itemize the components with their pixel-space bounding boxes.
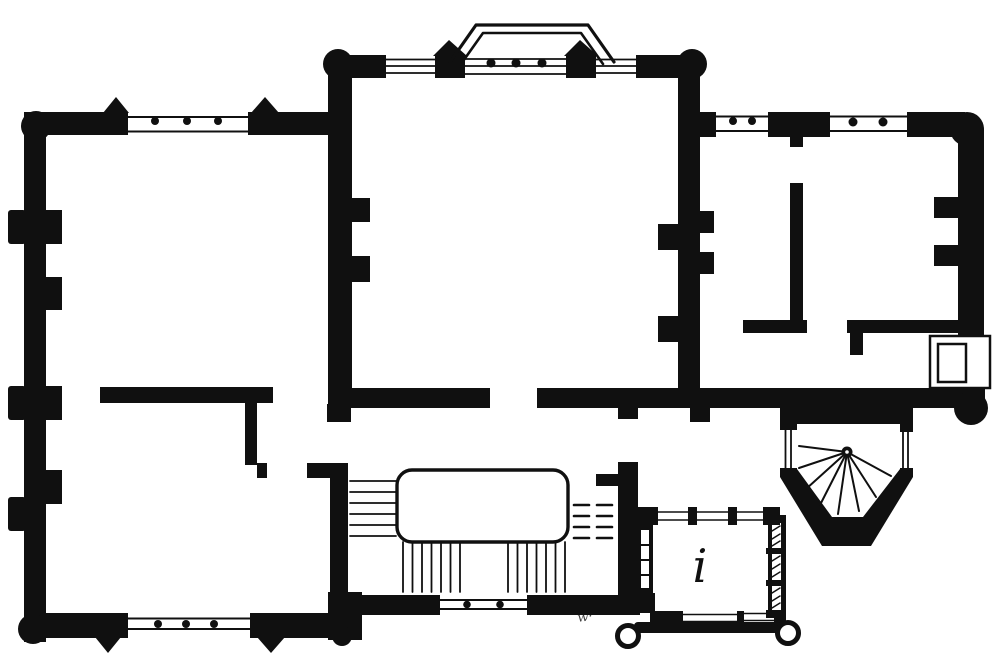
upper-flight-treads bbox=[350, 481, 396, 536]
plate-mark: w· bbox=[576, 609, 593, 626]
corner-fireplace-niche bbox=[930, 336, 990, 388]
left-wing-walls bbox=[8, 97, 362, 653]
dog-leg-stair bbox=[350, 470, 620, 592]
fireplace-pilaster bbox=[352, 198, 370, 222]
fireplace-pilaster bbox=[352, 256, 370, 282]
porch-base bbox=[634, 622, 782, 633]
stair-hall-south-window bbox=[440, 600, 527, 609]
fireplace-pilaster bbox=[934, 245, 960, 266]
great-hall-walls bbox=[323, 40, 985, 422]
stair-landing bbox=[397, 470, 568, 542]
west-buttress bbox=[8, 386, 26, 420]
fireplace-pilaster bbox=[934, 197, 960, 218]
spiral-stair-turret bbox=[780, 406, 913, 546]
fireplace-pilaster bbox=[700, 252, 714, 274]
floorplan-figure: i w· bbox=[0, 0, 1000, 657]
buttress-triangle bbox=[251, 97, 279, 113]
left-wing-south-window bbox=[128, 619, 250, 630]
porch-foot bbox=[618, 626, 639, 647]
fireplace-pilaster bbox=[658, 224, 678, 250]
west-buttress bbox=[8, 210, 26, 244]
porch-foot bbox=[778, 623, 799, 644]
west-buttress bbox=[8, 497, 26, 531]
fireplace-pilaster bbox=[46, 210, 62, 244]
fireplace-pilaster bbox=[46, 386, 62, 420]
floor-plan-canvas: i w· bbox=[0, 0, 1000, 657]
fireplace-pilaster bbox=[46, 277, 62, 310]
porch-glazing-ticks bbox=[772, 526, 780, 608]
stair-above-dashed bbox=[574, 505, 620, 538]
lower-flight-treads bbox=[403, 542, 565, 592]
buttress-triangle bbox=[257, 637, 285, 653]
room-partition bbox=[100, 387, 273, 403]
fireplace-pilaster bbox=[46, 470, 62, 504]
porch-room: i bbox=[618, 507, 799, 647]
fireplace-pilaster bbox=[700, 211, 714, 233]
buttress-triangle bbox=[95, 637, 121, 653]
fireplace-pilaster bbox=[658, 316, 678, 342]
left-wing-north-window bbox=[128, 117, 248, 132]
buttress-triangle bbox=[103, 97, 129, 113]
room-label-i: i bbox=[693, 539, 708, 593]
